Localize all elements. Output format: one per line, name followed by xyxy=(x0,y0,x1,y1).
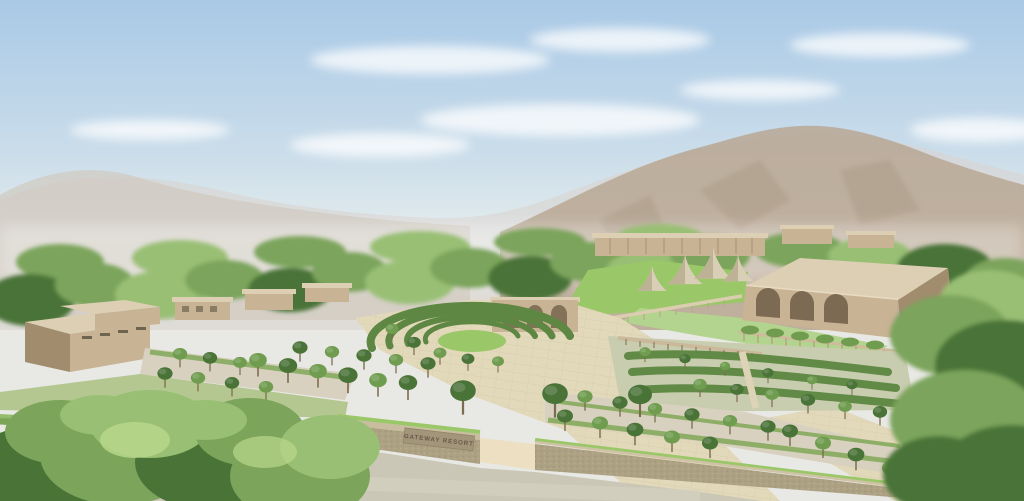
amphitheater-lawn xyxy=(438,330,506,352)
gate-driveway xyxy=(480,438,535,470)
rendering-canvas: GATEWAY RESORT xyxy=(0,0,1024,501)
resort-rendering: GATEWAY RESORT xyxy=(0,0,1024,501)
